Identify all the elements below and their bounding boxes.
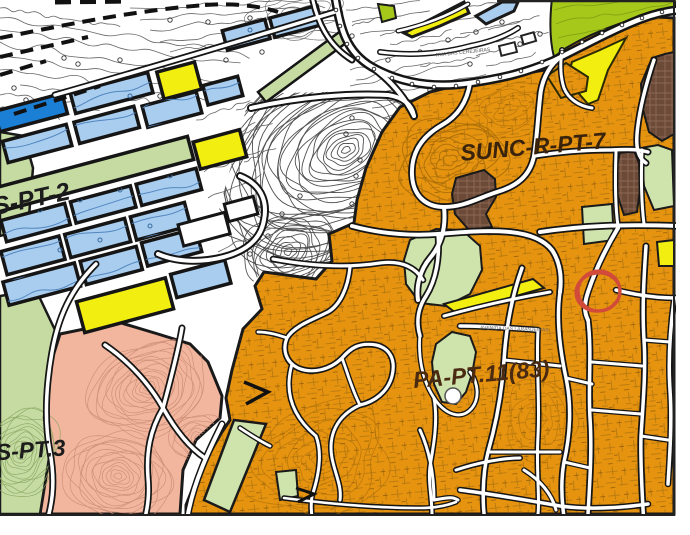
svg-text:S-PT.3: S-PT.3 <box>0 434 67 465</box>
